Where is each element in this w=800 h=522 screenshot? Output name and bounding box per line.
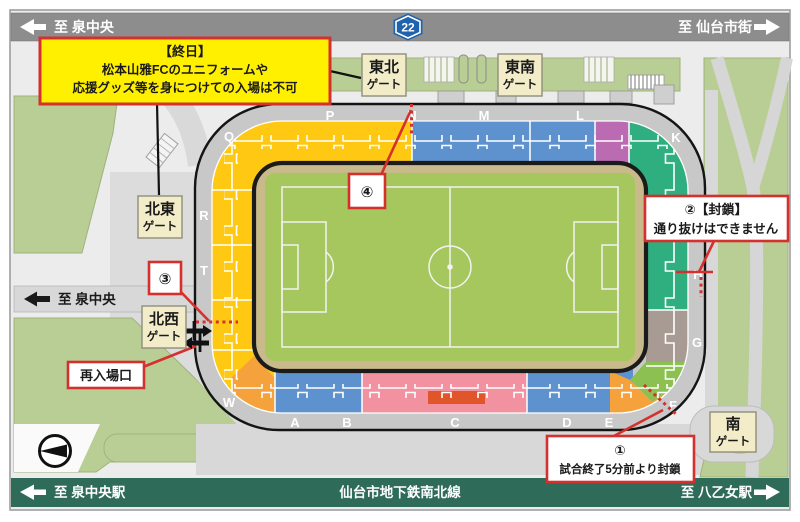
stadium-access-map: Q P N M L K R T W A B C D E F G H 至 泉中央 … xyxy=(0,0,800,522)
section-label-p: P xyxy=(326,108,335,123)
gate-east-south-suffix: ゲート xyxy=(503,77,538,91)
route-number: 22 xyxy=(401,21,415,35)
gate-east-south-name: 東南 xyxy=(505,58,535,76)
closure2-box: ②【封鎖】 通り抜けはできません xyxy=(645,196,788,241)
top-road-left-label: 至 泉中央 xyxy=(54,19,115,35)
closure1-text: 試合終了5分前より封鎖 xyxy=(559,462,681,476)
closure2-line2: 通り抜けはできません xyxy=(654,221,779,236)
metro-left-label: 至 泉中央駅 xyxy=(54,484,126,500)
allday-line3: 応援グッズ等を身につけての入場は不可 xyxy=(72,80,298,95)
point3-box: ③ xyxy=(149,262,181,294)
gate-east-north-suffix: ゲート xyxy=(367,77,402,91)
gate-south-suffix: ゲート xyxy=(716,434,751,448)
gate-south: 南 ゲート xyxy=(710,412,756,452)
east-road-inner xyxy=(705,90,718,428)
allday-line2: 松本山雅FCのユニフォームや xyxy=(102,62,268,77)
gate-south-name: 南 xyxy=(725,415,740,433)
section-label-w: W xyxy=(223,395,236,410)
closure1-number: ① xyxy=(614,443,625,458)
point4-label: ④ xyxy=(361,184,374,201)
point3-label: ③ xyxy=(159,271,172,288)
section-label-t: T xyxy=(200,263,208,278)
section-label-b: B xyxy=(342,415,351,430)
gate-north-east: 北東 ゲート xyxy=(138,196,182,238)
section-label-q: Q xyxy=(224,129,234,144)
section-label-f: F xyxy=(669,398,677,413)
gate-east-north-name: 東北 xyxy=(369,58,399,76)
closure1-box: ① 試合終了5分前より封鎖 xyxy=(547,436,694,482)
west-road-text: 至 泉中央 xyxy=(58,291,116,307)
section-label-g: G xyxy=(692,335,702,350)
section-label-m: M xyxy=(479,108,490,123)
reentry-box: 再入場口 xyxy=(68,362,144,388)
section-label-r: R xyxy=(199,208,209,223)
metro-right-label: 至 八乙女駅 xyxy=(681,484,753,500)
gate-north-west: 北西 ゲート xyxy=(142,306,186,348)
gate-east-north: 東北 ゲート xyxy=(362,54,406,96)
top-road-right-label: 至 仙台市街 xyxy=(678,19,752,35)
section-label-c: C xyxy=(450,415,460,430)
crossing-hatch-2 xyxy=(584,57,614,82)
reentry-label: 再入場口 xyxy=(80,368,132,383)
gate-east-south: 東南 ゲート xyxy=(498,54,542,96)
gate-north-west-suffix: ゲート xyxy=(147,329,182,343)
allday-line1: 【終日】 xyxy=(159,44,211,59)
stadium: Q P N M L K R T W A B C D E F G H xyxy=(195,104,705,430)
section-label-d: D xyxy=(562,415,571,430)
section-label-k: K xyxy=(671,130,681,145)
crossing-hatch-1 xyxy=(424,57,454,82)
closure2-line1: ②【封鎖】 xyxy=(684,202,747,217)
green-pillar-1 xyxy=(459,55,468,83)
gate-north-east-suffix: ゲート xyxy=(143,219,178,233)
green-pillar-2 xyxy=(477,55,486,83)
compass-icon xyxy=(40,436,71,467)
point4-box: ④ xyxy=(349,174,385,208)
gate-north-east-name: 北東 xyxy=(145,200,175,218)
section-label-a: A xyxy=(290,415,300,430)
section-label-e: E xyxy=(605,415,614,430)
section-label-l: L xyxy=(576,108,584,123)
gate-north-west-name: 北西 xyxy=(149,311,179,328)
metro-line-label: 仙台市地下鉄南北線 xyxy=(339,484,461,500)
allday-notice: 【終日】 松本山雅FCのユニフォームや 応援グッズ等を身につけての入場は不可 xyxy=(40,38,330,104)
